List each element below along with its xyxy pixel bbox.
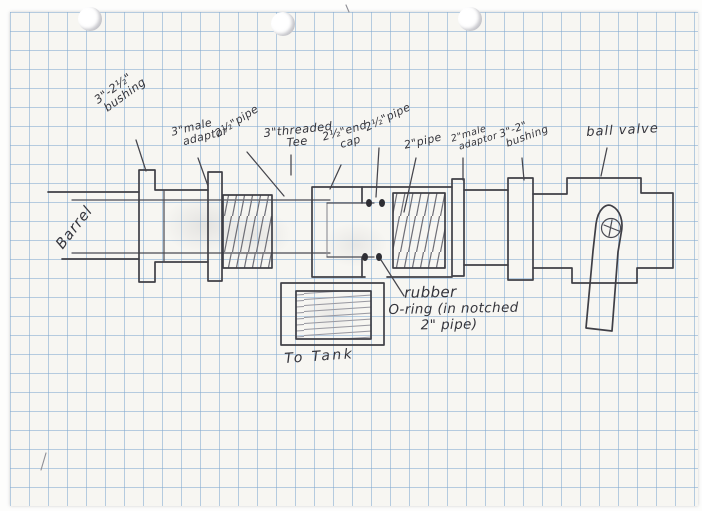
pipe-2half-hatched: [223, 195, 272, 268]
label-o-ring-note: rubber O-ring (in notched 2" pipe): [388, 282, 519, 335]
scan-page: { "figure": { "kind": "hand-drawn pipe-a…: [0, 0, 702, 511]
male-adaptor-2-outline: [452, 179, 508, 276]
bushing-3-2half-outline: [139, 170, 208, 282]
stray-pencil-marks: [41, 5, 349, 470]
leader-lines: [136, 140, 607, 296]
tank-branch-outline: [281, 283, 384, 345]
drawing-svg: [0, 0, 702, 511]
ball-valve-handle: [586, 205, 622, 331]
bushing-3-2-outline: [508, 178, 533, 280]
o-ring-dots: [362, 199, 385, 261]
barrel-lines: [48, 192, 330, 259]
male-adaptor-3-outline: [208, 172, 222, 281]
ball-valve-outline: [533, 178, 673, 283]
pipe-2-hatched: [393, 193, 445, 268]
